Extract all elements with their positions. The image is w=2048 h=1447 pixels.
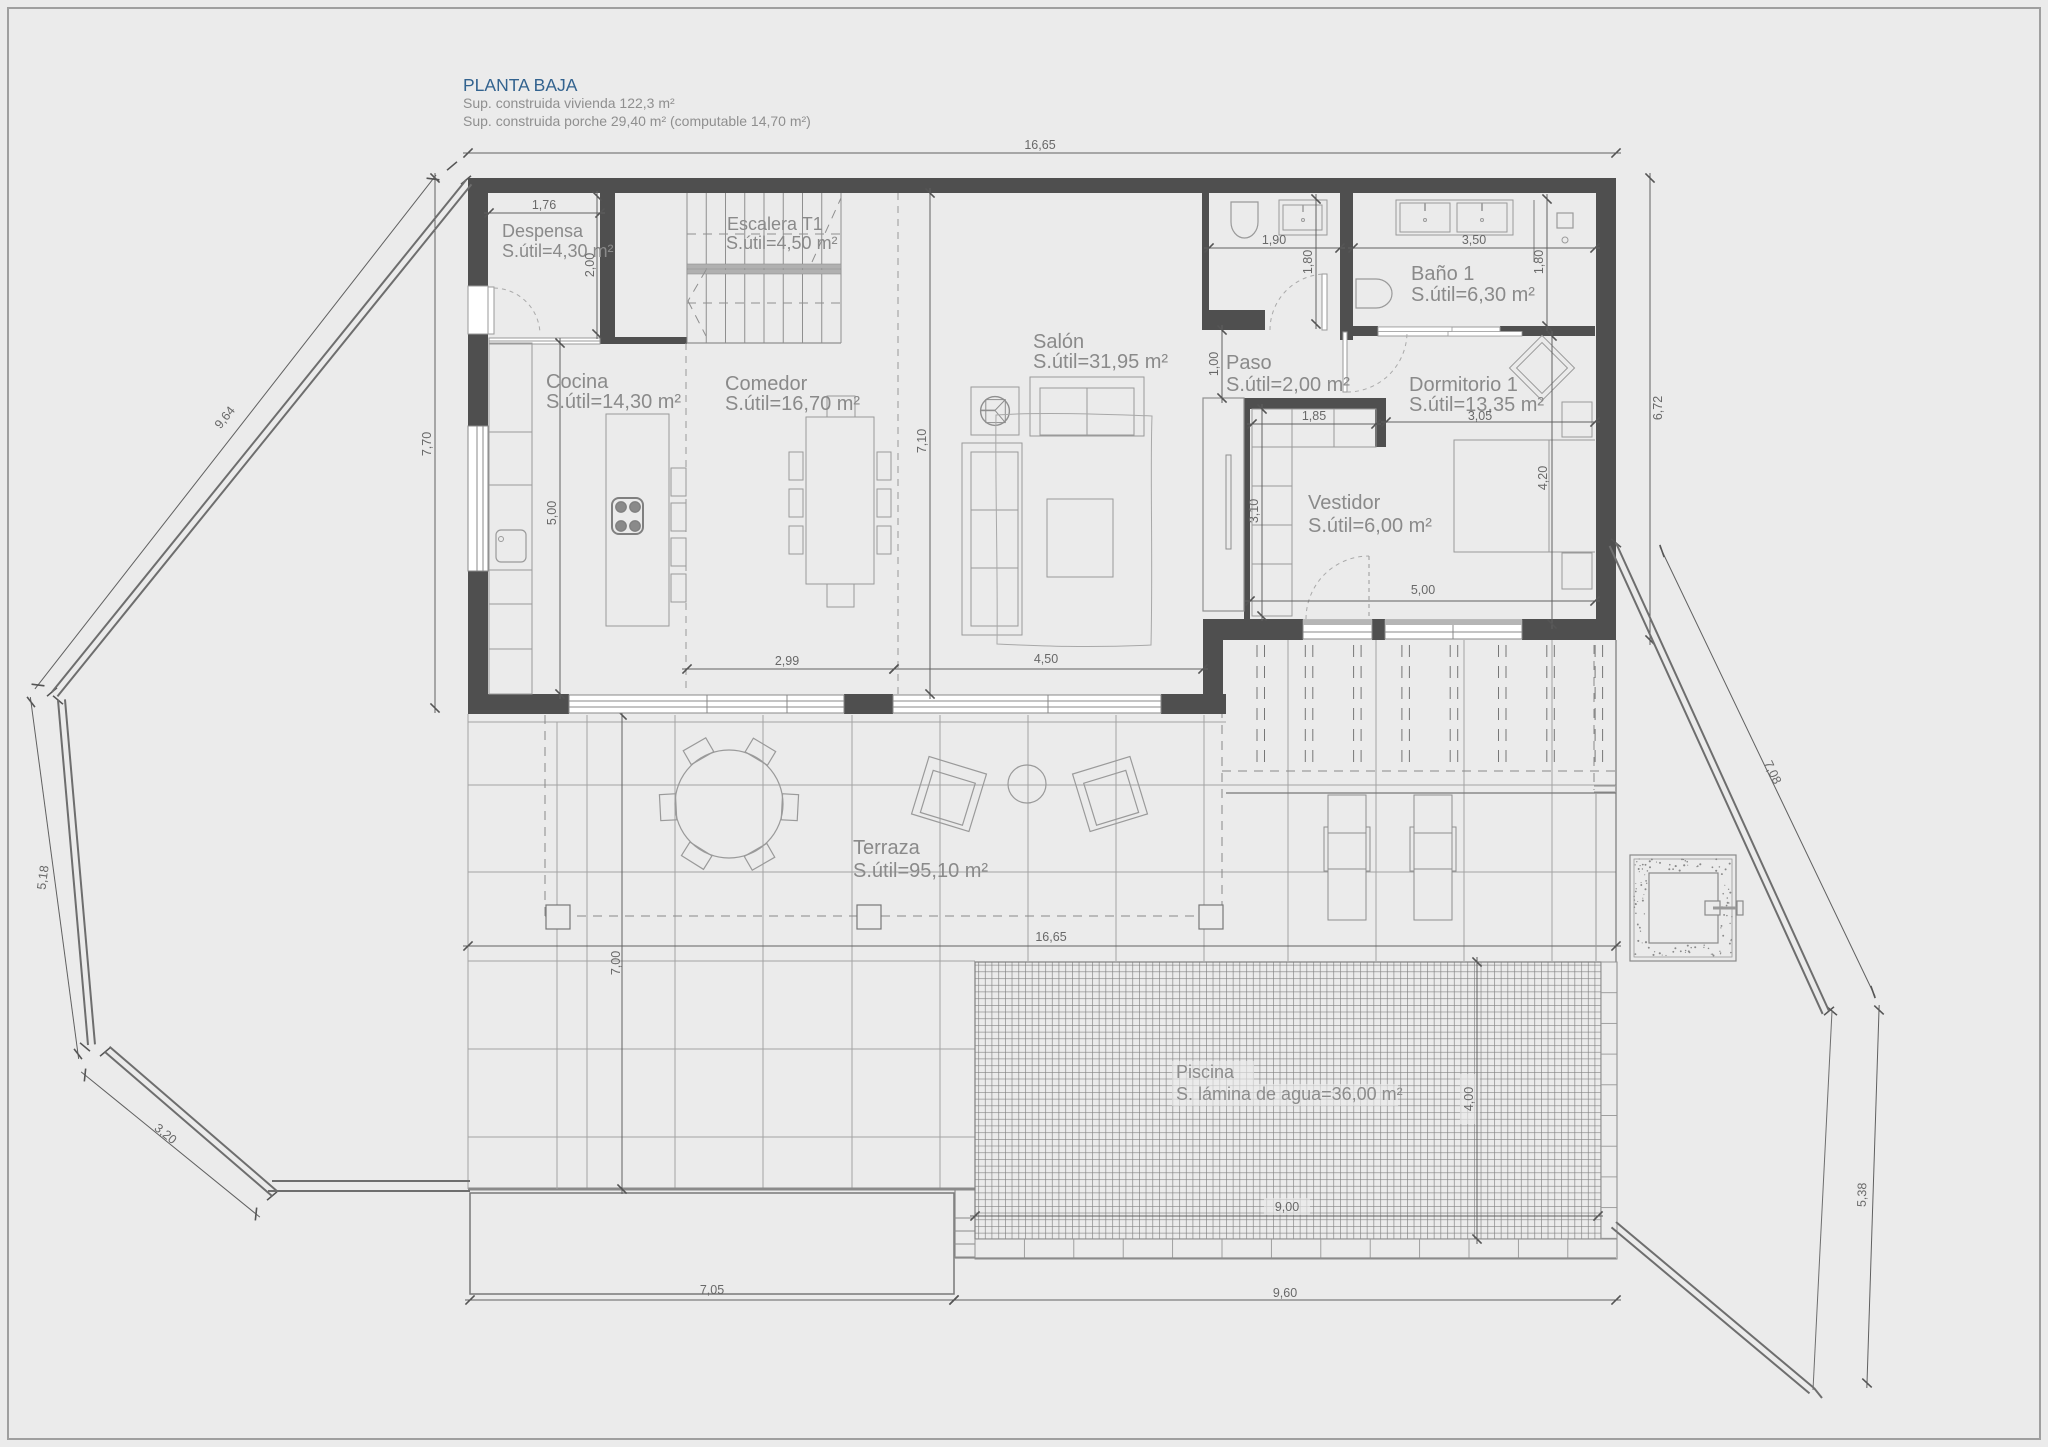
svg-text:Comedor: Comedor: [725, 373, 808, 395]
svg-text:16,65: 16,65: [1024, 138, 1055, 152]
svg-text:3,50: 3,50: [1462, 233, 1486, 247]
svg-text:S.útil=6,00 m²: S.útil=6,00 m²: [1308, 515, 1432, 537]
svg-text:4,00: 4,00: [1462, 1087, 1476, 1111]
svg-text:Baño 1: Baño 1: [1411, 263, 1474, 285]
svg-text:S.útil=4,50 m²: S.útil=4,50 m²: [726, 233, 838, 253]
svg-text:9,00: 9,00: [1275, 1200, 1299, 1214]
svg-text:4,20: 4,20: [1536, 466, 1550, 490]
svg-text:9,60: 9,60: [1273, 1286, 1297, 1300]
svg-text:1,85: 1,85: [1302, 409, 1326, 423]
svg-text:7,70: 7,70: [420, 432, 434, 456]
svg-text:3,10: 3,10: [1247, 499, 1261, 523]
svg-text:16,65: 16,65: [1035, 930, 1066, 944]
svg-text:2,00: 2,00: [583, 253, 597, 277]
svg-text:PLANTA BAJA: PLANTA BAJA: [463, 75, 578, 95]
svg-text:S.útil=16,70 m²: S.útil=16,70 m²: [725, 393, 860, 415]
svg-text:Despensa: Despensa: [502, 221, 584, 241]
svg-text:1,80: 1,80: [1301, 250, 1315, 274]
svg-text:5,00: 5,00: [1411, 583, 1435, 597]
svg-text:7,10: 7,10: [915, 429, 929, 453]
svg-text:1,80: 1,80: [1532, 250, 1546, 274]
svg-text:Salón: Salón: [1033, 331, 1084, 353]
svg-text:Escalera T1: Escalera T1: [727, 214, 823, 234]
svg-text:1,00: 1,00: [1207, 352, 1221, 376]
svg-text:2,99: 2,99: [775, 654, 799, 668]
svg-text:4,50: 4,50: [1034, 652, 1058, 666]
svg-text:5,38: 5,38: [1855, 1182, 1870, 1207]
svg-text:S.útil=31,95 m²: S.útil=31,95 m²: [1033, 351, 1168, 373]
svg-text:S.útil=6,30 m²: S.útil=6,30 m²: [1411, 284, 1535, 306]
svg-text:S.útil=95,10 m²: S.útil=95,10 m²: [853, 860, 988, 882]
svg-text:1,76: 1,76: [532, 198, 556, 212]
svg-text:Terraza: Terraza: [853, 837, 921, 859]
svg-text:1,90: 1,90: [1262, 233, 1286, 247]
svg-text:S.útil=14,30 m²: S.útil=14,30 m²: [546, 391, 681, 413]
svg-text:Dormitorio 1: Dormitorio 1: [1409, 374, 1518, 396]
svg-text:Piscina: Piscina: [1176, 1062, 1235, 1082]
svg-text:Sup. construida porche 29,40 m: Sup. construida porche 29,40 m² (computa…: [463, 113, 811, 129]
svg-text:7,00: 7,00: [609, 951, 623, 975]
svg-text:7,05: 7,05: [700, 1283, 724, 1297]
svg-text:Vestidor: Vestidor: [1308, 492, 1381, 514]
svg-text:Paso: Paso: [1226, 352, 1272, 374]
svg-text:S. lámina de agua=36,00 m²: S. lámina de agua=36,00 m²: [1176, 1084, 1403, 1104]
svg-text:3,05: 3,05: [1468, 409, 1492, 423]
svg-text:S.útil=2,00 m²: S.útil=2,00 m²: [1226, 374, 1350, 396]
svg-text:Cocina: Cocina: [546, 371, 609, 393]
svg-text:6,72: 6,72: [1651, 396, 1665, 420]
svg-text:Sup. construida vivienda 122,3: Sup. construida vivienda 122,3 m²: [463, 95, 675, 111]
svg-text:5,00: 5,00: [545, 501, 559, 525]
